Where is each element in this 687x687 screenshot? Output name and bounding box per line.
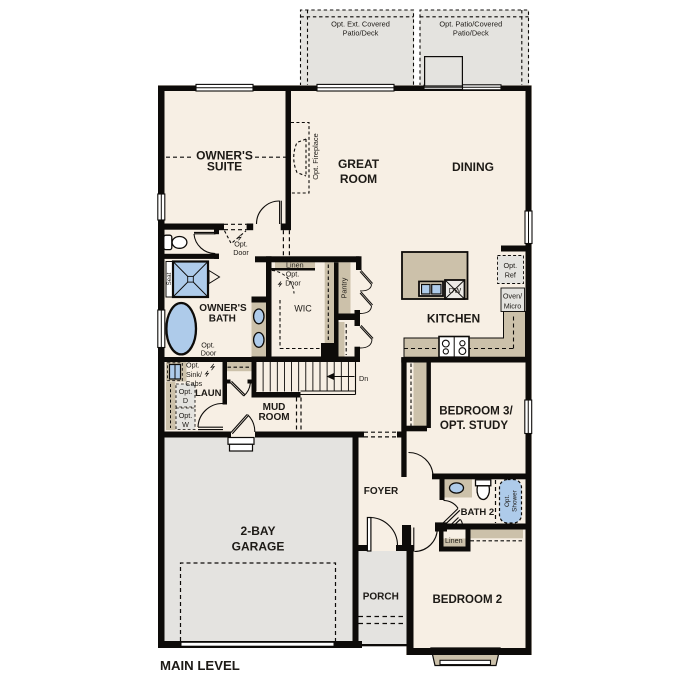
svg-text:Sink/: Sink/ [186,370,202,379]
svg-text:Opt.: Opt. [504,261,518,270]
svg-text:GARAGE: GARAGE [232,539,285,553]
svg-text:D: D [183,396,188,405]
svg-text:PORCH: PORCH [363,592,399,603]
svg-text:FOYER: FOYER [364,486,399,497]
svg-text:ROOM: ROOM [258,412,289,423]
svg-text:Patio/Deck: Patio/Deck [343,28,379,37]
svg-text:WIC: WIC [294,303,312,313]
svg-text:Dn: Dn [359,374,368,383]
svg-text:OWNER'S: OWNER'S [199,303,247,314]
svg-text:ROOM: ROOM [340,172,377,186]
svg-text:SUITE: SUITE [207,159,242,173]
svg-text:Linen: Linen [445,536,463,545]
svg-text:Patio/Deck: Patio/Deck [453,28,489,37]
svg-text:Oven/: Oven/ [503,291,522,300]
svg-text:Opt.: Opt. [286,270,300,279]
svg-text:2-BAY: 2-BAY [241,524,276,538]
svg-text:Micro: Micro [504,302,522,311]
svg-text:DINING: DINING [452,160,494,174]
svg-text:DW: DW [449,286,461,295]
svg-text:Ref: Ref [505,271,516,280]
svg-text:BEDROOM 3/: BEDROOM 3/ [439,404,513,417]
svg-text:Pantry: Pantry [340,277,349,298]
svg-text:BATH 2: BATH 2 [461,507,495,518]
svg-text:Linen: Linen [286,261,304,270]
svg-text:Door: Door [285,279,301,288]
svg-text:LAUN: LAUN [195,388,222,399]
svg-text:Opt.: Opt. [179,387,193,396]
svg-text:Opt. Fireplace: Opt. Fireplace [311,133,320,179]
svg-text:GREAT: GREAT [338,157,380,171]
svg-text:Door: Door [233,248,249,257]
svg-text:OPT. STUDY: OPT. STUDY [440,419,509,432]
svg-text:Opt.: Opt. [186,361,200,370]
svg-text:Door: Door [201,349,217,358]
svg-text:MAIN LEVEL: MAIN LEVEL [160,658,240,673]
svg-text:Opt.: Opt. [179,411,193,420]
svg-text:Shower: Shower [511,489,518,512]
svg-text:Opt. Ext. Covered: Opt. Ext. Covered [331,19,390,28]
svg-text:Opt. Patio/Covered: Opt. Patio/Covered [439,19,502,28]
svg-text:BEDROOM 2: BEDROOM 2 [432,594,502,606]
svg-text:KITCHEN: KITCHEN [427,311,480,325]
svg-text:BATH: BATH [209,314,236,325]
svg-text:W: W [182,420,189,429]
svg-text:Opt.: Opt. [504,495,511,507]
